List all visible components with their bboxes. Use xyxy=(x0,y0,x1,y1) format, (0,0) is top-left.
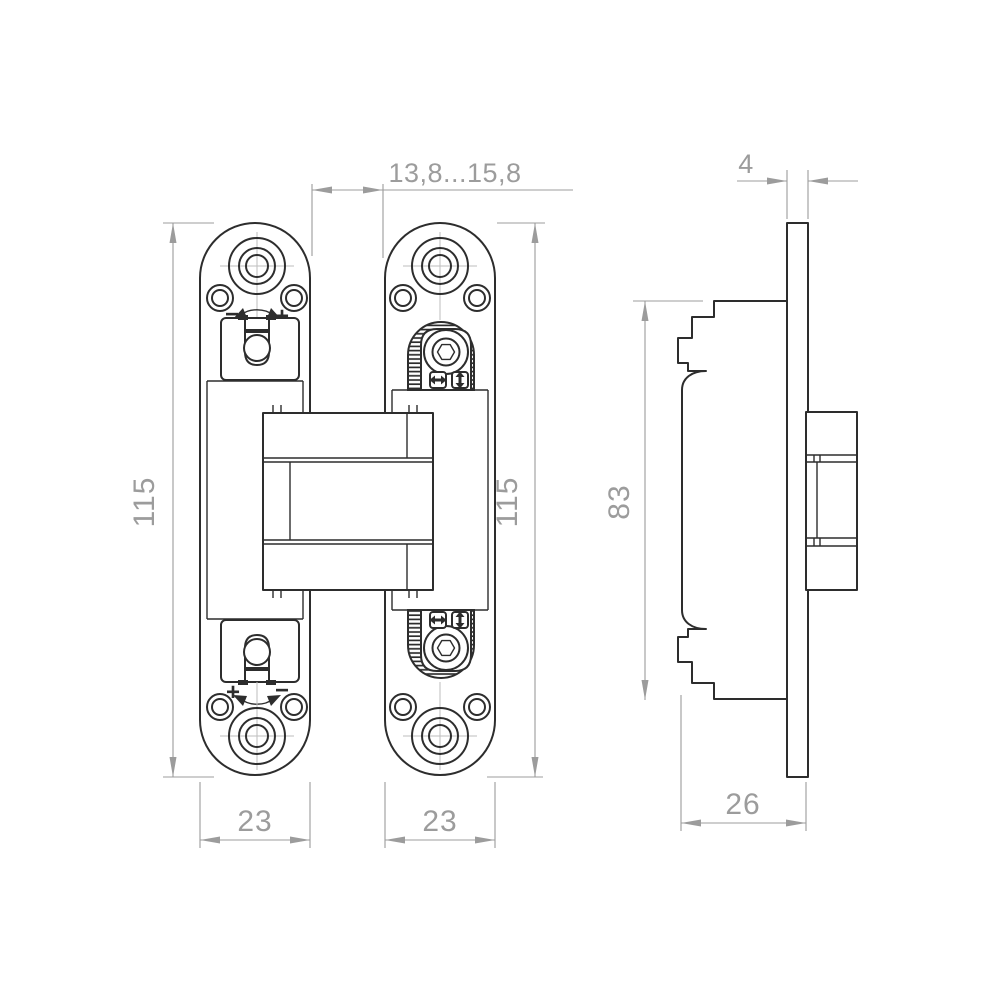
side-face-plate xyxy=(787,223,808,777)
center-knuckle-block xyxy=(263,405,433,598)
dim-width-left: 23 xyxy=(200,782,310,848)
drawing-canvas: − + + − xyxy=(0,0,1000,1000)
side-knuckle-block xyxy=(806,412,857,590)
dim-depth-label: 26 xyxy=(725,788,760,821)
dim-plate-thickness: 4 xyxy=(737,149,858,219)
dim-cup-height-label: 83 xyxy=(603,484,636,519)
dim-plate-thickness-label: 4 xyxy=(738,149,754,179)
left-top-adjuster-bracket xyxy=(221,315,299,380)
hinge-technical-drawing: − + + − xyxy=(0,0,1000,1000)
side-view xyxy=(678,223,857,777)
dim-height-left-label: 115 xyxy=(128,477,161,528)
dim-width-right: 23 xyxy=(385,782,495,848)
side-cup-profile xyxy=(678,301,787,699)
left-bottom-adjuster-bracket xyxy=(221,620,299,685)
dim-gap-label: 13,8...15,8 xyxy=(388,158,521,188)
dim-width-left-label: 23 xyxy=(237,805,272,838)
dim-height-right-label: 115 xyxy=(491,477,524,528)
dim-width-right-label: 23 xyxy=(422,805,457,838)
